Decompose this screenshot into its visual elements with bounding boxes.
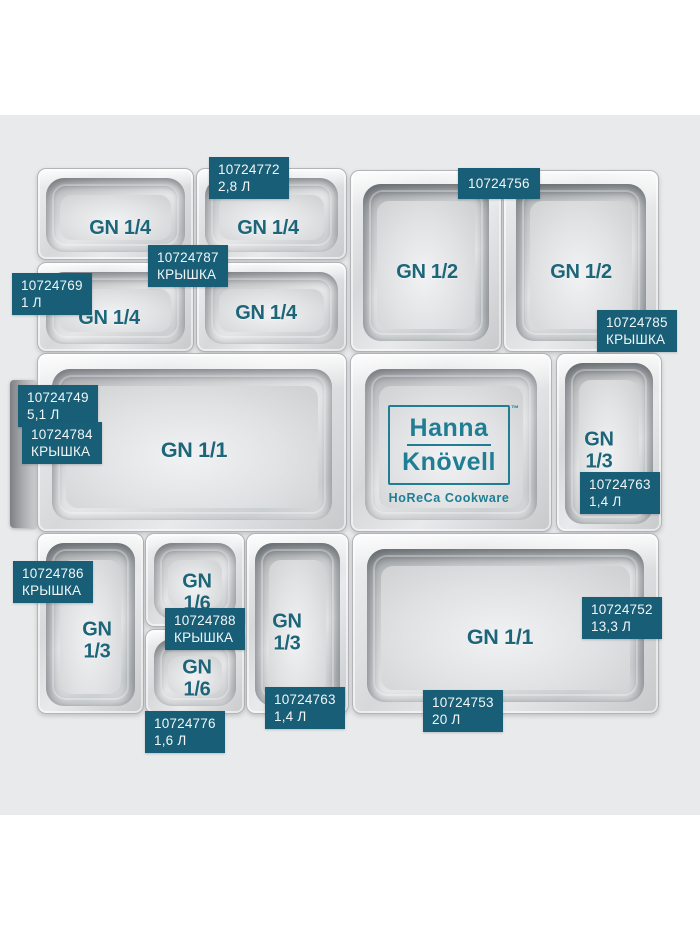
tag-volume: 1 Л — [21, 294, 83, 311]
tag-article: 10724752 — [591, 601, 653, 618]
tag-article: 10724784 — [31, 426, 93, 443]
tag-article: 10724788 — [174, 612, 236, 629]
pan-size-label: GN 1/2 — [550, 261, 612, 283]
pan-size-label: GN 1/3 — [272, 611, 301, 656]
tag-volume: 20 Л — [432, 711, 494, 728]
pan-size-label: GN 1/4 — [89, 217, 151, 239]
tag-10724756: 10724756 — [458, 168, 540, 199]
tag-10724788: 10724788 КРЫШКА — [165, 608, 245, 650]
tag-10724776: 10724776 1,6 Л — [145, 711, 225, 753]
tag-article: 10724763 — [274, 691, 336, 708]
brand-logo-box: Hanna Knövell ™ — [388, 405, 510, 485]
product-image: GN 1/4 GN 1/4 GN 1/4 GN 1/4 GN 1/2 GN 1/… — [0, 0, 700, 933]
tag-volume: 5,1 Л — [27, 406, 89, 423]
tag-lid-label: КРЫШКА — [22, 582, 84, 599]
tag-10724786: 10724786 КРЫШКА — [13, 561, 93, 603]
tag-10724785: 10724785 КРЫШКА — [597, 310, 677, 352]
tag-article: 10724756 — [468, 175, 530, 192]
tag-10724752: 10724752 13,3 Л — [582, 597, 662, 639]
tag-article: 10724749 — [27, 389, 89, 406]
tag-lid-label: КРЫШКА — [606, 331, 668, 348]
pan-size-label: GN 1/4 — [237, 217, 299, 239]
pan-size-label: GN 1/4 — [235, 302, 297, 324]
brand-logo: Hanna Knövell ™ HoReCa Cookware — [388, 405, 510, 505]
pan-size-label: GN 1/1 — [467, 625, 533, 649]
tag-article: 10724786 — [22, 565, 84, 582]
tag-lid-label: КРЫШКА — [174, 629, 236, 646]
tag-article: 10724753 — [432, 694, 494, 711]
pan-size-label: GN 1/1 — [161, 438, 227, 462]
pan-well — [46, 178, 185, 252]
product-photo: GN 1/4 GN 1/4 GN 1/4 GN 1/4 GN 1/2 GN 1/… — [0, 115, 700, 815]
brand-subtitle: HoReCa Cookware — [388, 491, 510, 505]
tag-10724769: 10724769 1 Л — [12, 273, 92, 315]
brand-name-line1: Hanna — [410, 415, 489, 441]
tag-10724763-bottom: 10724763 1,4 Л — [265, 687, 345, 729]
tag-volume: 2,8 Л — [218, 178, 280, 195]
tag-lid-label: КРЫШКА — [157, 266, 219, 283]
tag-article: 10724772 — [218, 161, 280, 178]
tag-10724787: 10724787 КРЫШКА — [148, 245, 228, 287]
brand-name-line2: Knövell — [402, 449, 496, 475]
tag-10724784: 10724784 КРЫШКА — [22, 422, 102, 464]
trademark-symbol: ™ — [511, 404, 519, 413]
tag-10724772: 10724772 2,8 Л — [209, 157, 289, 199]
tag-article: 10724763 — [589, 476, 651, 493]
tag-article: 10724769 — [21, 277, 83, 294]
brand-logo-divider — [407, 444, 491, 446]
tag-volume: 13,3 Л — [591, 618, 653, 635]
tag-volume: 1,6 Л — [154, 732, 216, 749]
tag-volume: 1,4 Л — [589, 493, 651, 510]
tag-10724753: 10724753 20 Л — [423, 690, 503, 732]
pan-size-label: GN 1/2 — [396, 261, 458, 283]
tag-article: 10724776 — [154, 715, 216, 732]
tag-volume: 1,4 Л — [274, 708, 336, 725]
pan-size-label: GN 1/3 — [584, 429, 613, 474]
pan-size-label: GN 1/6 — [174, 657, 221, 702]
tag-10724749: 10724749 5,1 Л — [18, 385, 98, 427]
pan-size-label: GN 1/3 — [82, 619, 111, 664]
tag-article: 10724785 — [606, 314, 668, 331]
tag-lid-label: КРЫШКА — [31, 443, 93, 460]
tag-article: 10724787 — [157, 249, 219, 266]
tag-10724763-middle: 10724763 1,4 Л — [580, 472, 660, 514]
